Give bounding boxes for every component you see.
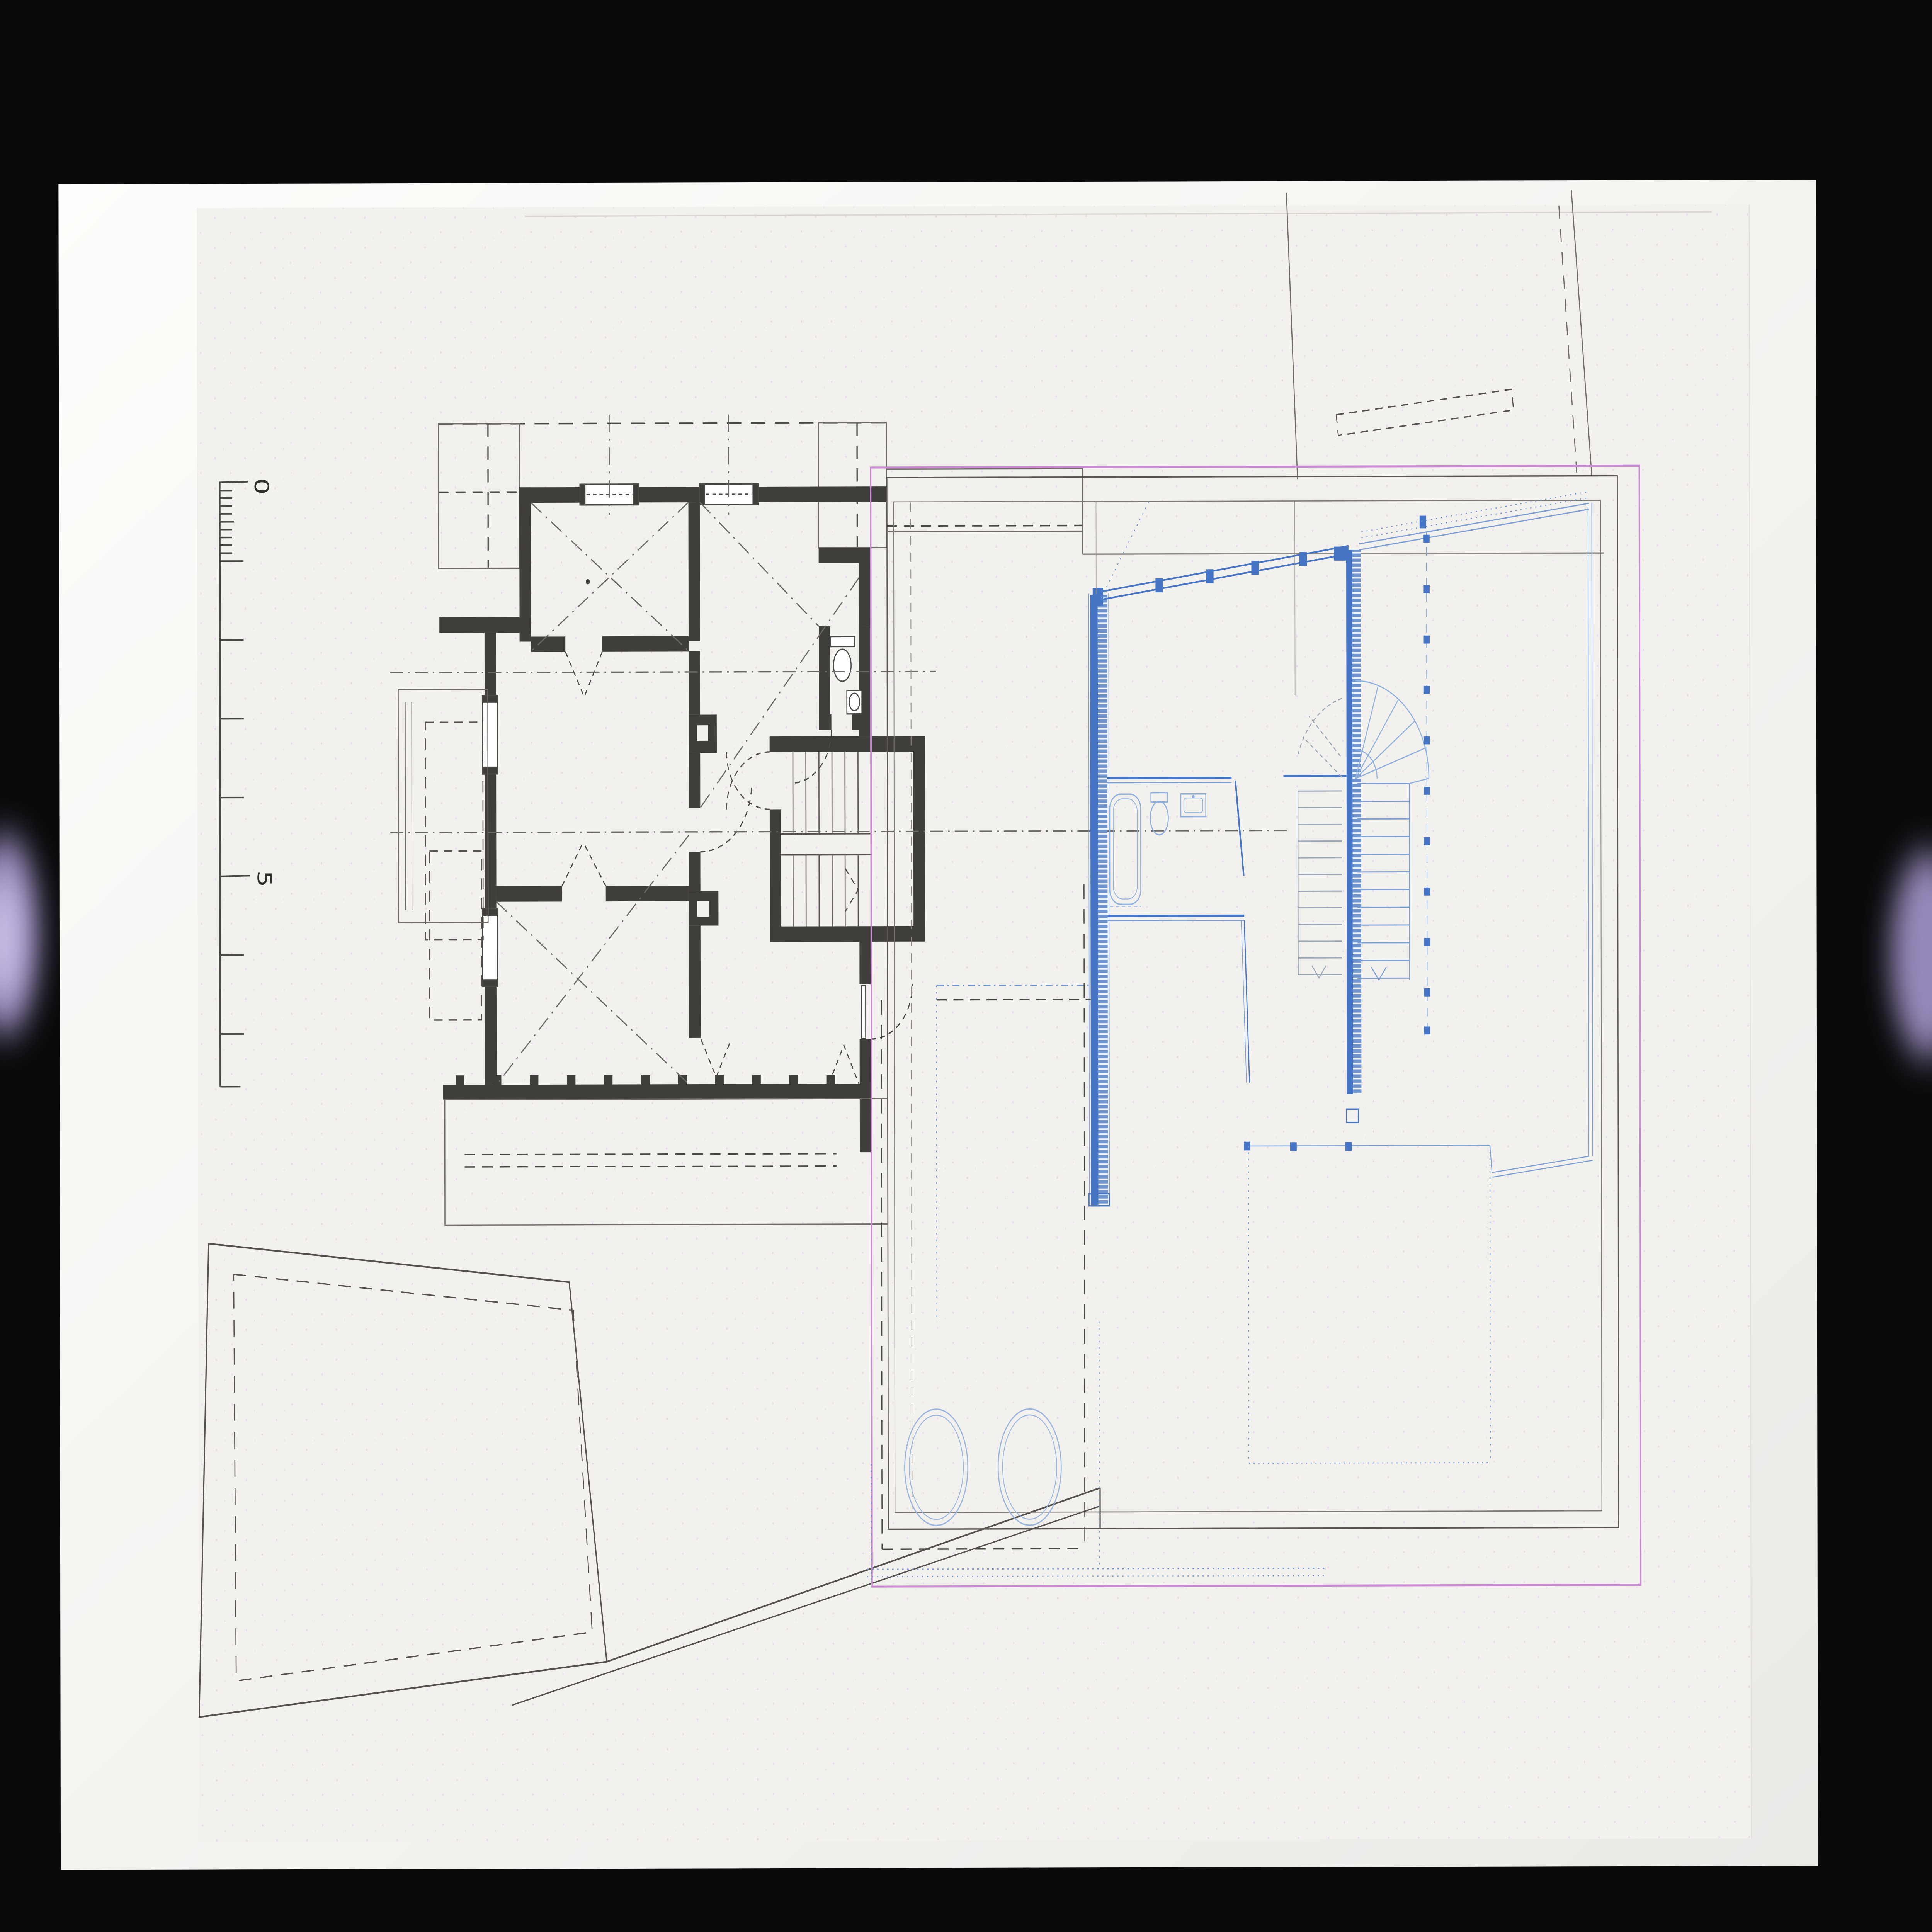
scanned-floor-plan-page: 0 5	[0, 0, 1932, 1932]
toilet-bowl	[833, 649, 851, 681]
paper-group: 0 5	[58, 180, 1818, 1870]
ink-speck	[586, 579, 590, 585]
paper-speckle	[197, 204, 1751, 1842]
flue-opening-2	[697, 901, 709, 917]
flue-opening-1	[697, 725, 708, 741]
scale-label-five: 5	[253, 871, 276, 887]
toilet-tank	[830, 636, 855, 646]
scan-canvas: 0 5	[0, 0, 1932, 1932]
scale-label-zero: 0	[250, 478, 272, 495]
blue-wall-left	[1088, 593, 1109, 1206]
